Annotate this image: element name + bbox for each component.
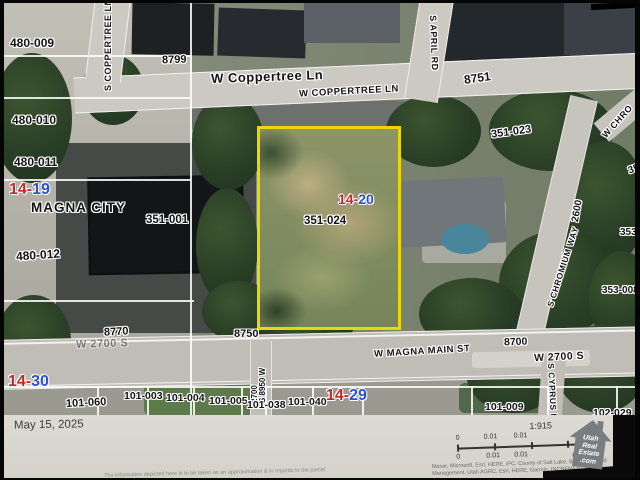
street-label-s-coppertree-ln: S COPPERTREE LN: [103, 3, 113, 91]
section-number: 20: [358, 191, 374, 207]
scale-km-tick: 0: [456, 454, 460, 461]
parcel-label-351-001: 351-001: [146, 214, 188, 226]
parcel-label-101-009: 101-009: [485, 401, 524, 413]
house-number-8750: 8750: [234, 328, 258, 340]
parcel-line: [190, 3, 192, 415]
logo-word: .com: [579, 456, 596, 465]
scale-km-tick: 0.01: [486, 452, 500, 459]
map-footer-bar: May 15, 2025 The information depicted he…: [4, 415, 635, 478]
scale-mi-tick: 0.01: [514, 432, 528, 439]
building-townhomes: [217, 7, 307, 58]
trees: [192, 95, 264, 190]
building-roof: [564, 3, 635, 55]
section-number: 14: [9, 181, 27, 198]
section-label-14-29: 14-29: [326, 387, 367, 405]
section-label-14-20: 14-20: [338, 191, 374, 207]
section-number: 29: [349, 387, 367, 404]
section-label-14-19: 14-19: [9, 181, 50, 199]
parcel-label-353-mid: 353-: [620, 227, 635, 238]
building-roof: [304, 3, 400, 43]
parcel-label-353-008: 353-008: [602, 285, 635, 296]
parcel-label-101-004: 101-004: [166, 392, 205, 404]
scale-km-tick: 0.01: [514, 451, 528, 458]
scale-tick: [567, 441, 569, 448]
section-number: 14: [8, 373, 26, 390]
map-canvas[interactable]: 480-009 480-010 480-011 14-19 MAGNA CITY…: [4, 3, 635, 415]
grid-label-2700-s-8950-w: 2700S 8950 W: [251, 368, 267, 403]
map-date: May 15, 2025: [14, 418, 84, 431]
parcel-line: [4, 97, 190, 99]
parcel-label-480-010: 480-010: [12, 113, 56, 127]
city-label-magna: MAGNA CITY: [31, 200, 126, 215]
scale-mi-tick: 0: [456, 435, 460, 442]
swimming-pool: [441, 224, 489, 254]
disclaimer-text: The information depicted here is to be t…: [104, 467, 325, 478]
section-number: 30: [31, 373, 49, 390]
parcel-label-101-040: 101-040: [288, 396, 327, 408]
scale-tick: [531, 442, 533, 449]
street-s-8950-w: S 8950 W: [258, 368, 267, 403]
parcel-line: [4, 386, 635, 388]
scale-tick: [457, 445, 459, 452]
parcel-line: [4, 300, 194, 302]
app-window: 480-009 480-010 480-011 14-19 MAGNA CITY…: [4, 3, 635, 478]
screenshot-photo-frame: 480-009 480-010 480-011 14-19 MAGNA CITY…: [0, 0, 640, 480]
parcel-line: [471, 386, 473, 415]
scale-mi-tick: 0.01: [484, 433, 498, 440]
parcel-label-351-024: 351-024: [304, 215, 346, 227]
parcel-label-480-011: 480-011: [14, 155, 57, 169]
parcel-label-101-005: 101-005: [209, 395, 248, 407]
parcel-label-480-009: 480-009: [10, 36, 54, 50]
street-label-s-april-rd: S APRIL RD: [428, 15, 440, 71]
parcel-label-102-029: 102-029: [593, 407, 632, 415]
section-label-14-30: 14-30: [8, 373, 49, 391]
parcel-label-101-038: 101-038: [247, 399, 286, 411]
building-townhomes: [132, 3, 215, 56]
section-number: 14: [338, 191, 354, 207]
parcel-label-101-060: 101-060: [66, 396, 107, 410]
street-label-w-2700-s-left: W 2700 S: [76, 337, 129, 351]
parcel-label-101-003: 101-003: [124, 390, 163, 402]
section-number: 14: [326, 387, 344, 404]
house-number-8700: 8700: [504, 336, 528, 349]
scale-ratio: 1:915: [529, 420, 552, 431]
highlighted-parcel-351-024[interactable]: [257, 126, 401, 330]
section-number: 19: [32, 181, 50, 198]
house-number-8799: 8799: [162, 54, 187, 67]
scale-tick: [494, 443, 496, 450]
